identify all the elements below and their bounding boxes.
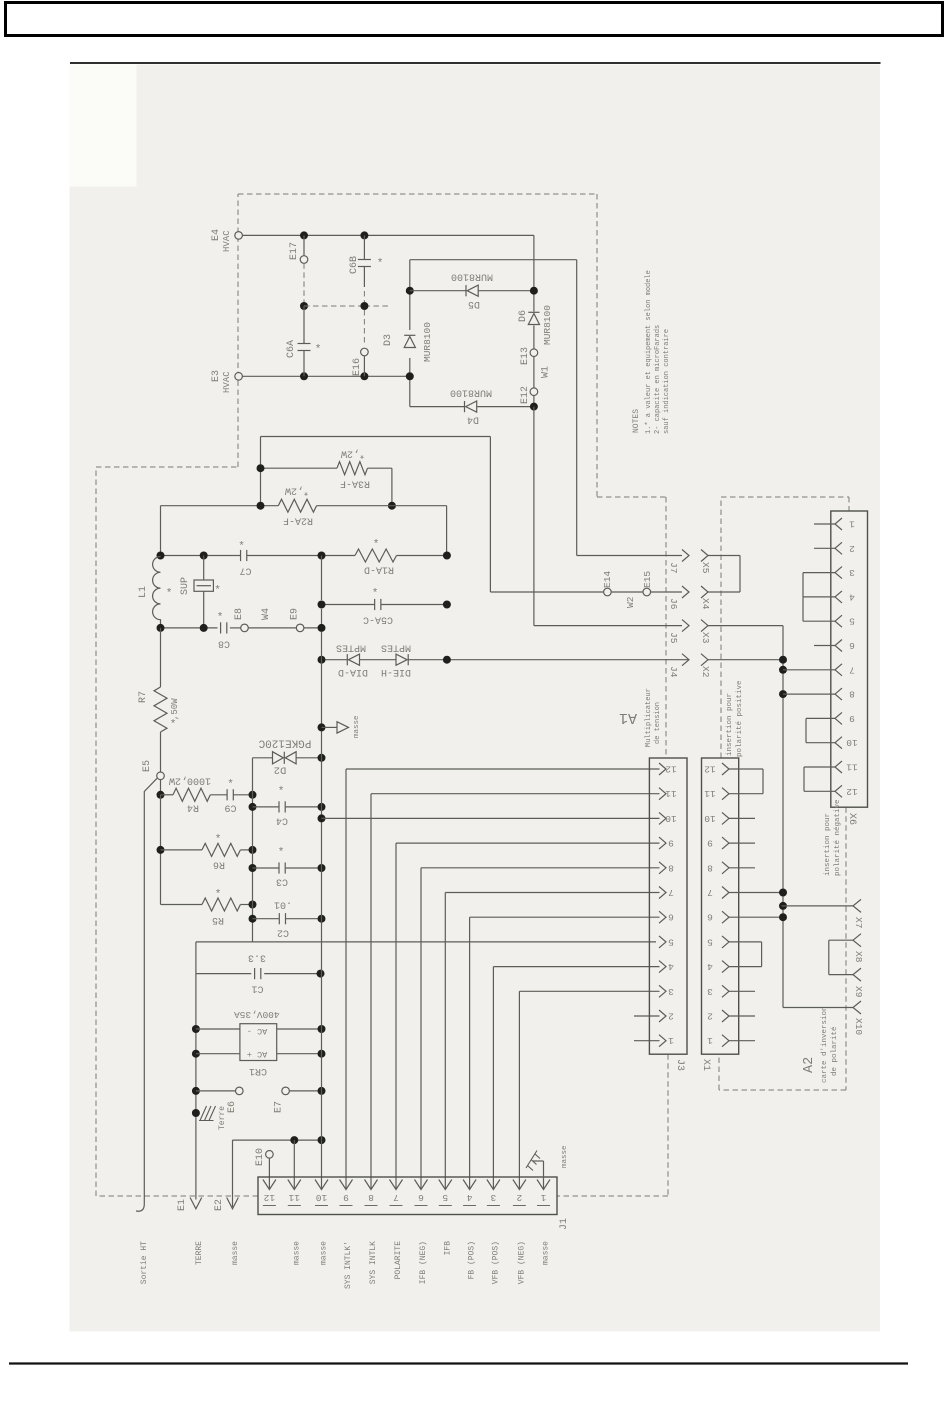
svg-text:3: 3 <box>668 986 674 997</box>
svg-text:masse: masse <box>293 1241 302 1265</box>
svg-text:de polarité: de polarité <box>831 1026 839 1076</box>
svg-text:X5: X5 <box>700 562 711 574</box>
svg-text:C2: C2 <box>277 926 289 937</box>
svg-text:C5A-C: C5A-C <box>363 613 393 624</box>
svg-text:5: 5 <box>668 936 674 947</box>
svg-text:2: 2 <box>849 543 855 554</box>
svg-text:2: 2 <box>668 1010 674 1021</box>
svg-text:POLARITE: POLARITE <box>394 1241 403 1280</box>
svg-text:HVAC: HVAC <box>222 371 232 393</box>
svg-text:R1A-D: R1A-D <box>364 563 394 574</box>
svg-text:X6: X6 <box>846 813 857 825</box>
svg-text:X10: X10 <box>853 1018 864 1035</box>
svg-text:R5: R5 <box>212 914 224 925</box>
svg-text:3: 3 <box>490 1192 496 1203</box>
svg-text:1: 1 <box>668 1035 674 1046</box>
svg-text:TERRE: TERRE <box>195 1241 204 1265</box>
svg-text:8: 8 <box>707 862 713 873</box>
svg-text:C6B: C6B <box>349 256 360 274</box>
svg-text:10: 10 <box>665 813 677 824</box>
svg-text:E14: E14 <box>602 571 613 588</box>
svg-text:E12: E12 <box>520 386 531 404</box>
svg-text:masse: masse <box>231 1241 240 1265</box>
svg-text:1: 1 <box>849 518 855 529</box>
svg-text:1.* a valeur et equipement sel: 1.* a valeur et equipement selon modele <box>645 270 653 434</box>
svg-text:X3: X3 <box>700 632 711 644</box>
svg-text:11: 11 <box>704 788 716 799</box>
svg-text:3: 3 <box>707 986 713 997</box>
svg-text:A1: A1 <box>619 709 637 726</box>
svg-text:11: 11 <box>665 788 677 799</box>
svg-text:E16: E16 <box>352 358 363 376</box>
svg-text:9: 9 <box>707 838 713 849</box>
svg-text:X1: X1 <box>700 1059 711 1071</box>
svg-text:HVAC: HVAC <box>222 230 232 252</box>
svg-text:D4: D4 <box>467 413 479 424</box>
svg-text:Multiplicateur: Multiplicateur <box>645 688 653 747</box>
svg-text:masse: masse <box>561 1145 569 1168</box>
svg-text:7: 7 <box>707 887 713 898</box>
svg-text:,50W: ,50W <box>170 698 180 720</box>
svg-text:VFB (POS): VFB (POS) <box>492 1241 501 1284</box>
svg-text:R6: R6 <box>213 858 225 869</box>
svg-text:IFB (NEG): IFB (NEG) <box>419 1241 428 1284</box>
svg-text:J7: J7 <box>668 562 679 573</box>
svg-text:C6A: C6A <box>286 340 297 358</box>
svg-text:MUR8100: MUR8100 <box>422 322 433 362</box>
svg-text:*: * <box>278 847 285 859</box>
svg-text:insertion pour: insertion pour <box>824 813 832 876</box>
svg-text:*: * <box>215 889 222 901</box>
svg-text:E5: E5 <box>142 760 153 772</box>
svg-text:12: 12 <box>263 1192 275 1203</box>
svg-text:FB (POS): FB (POS) <box>468 1241 477 1279</box>
svg-text:7: 7 <box>668 887 674 898</box>
svg-text:X2: X2 <box>700 666 711 678</box>
svg-text:L1: L1 <box>138 586 149 598</box>
svg-text:MPTES: MPTES <box>381 641 411 652</box>
svg-text:12: 12 <box>846 786 858 797</box>
svg-text:*: * <box>170 719 177 731</box>
svg-text:masse: masse <box>353 715 361 738</box>
svg-text:de tension: de tension <box>654 702 662 744</box>
svg-text:MUR8100: MUR8100 <box>542 305 553 345</box>
svg-text:DIA-D: DIA-D <box>338 666 368 677</box>
svg-text:*: * <box>372 588 379 600</box>
svg-text:D3: D3 <box>383 334 394 346</box>
svg-text:*: * <box>238 541 245 553</box>
svg-text:SUP: SUP <box>180 577 191 595</box>
svg-text:2: 2 <box>516 1192 522 1203</box>
svg-text:X4: X4 <box>700 598 711 610</box>
svg-text:4: 4 <box>849 591 855 602</box>
svg-text:NOTES: NOTES <box>632 409 641 433</box>
svg-text:MUR8100: MUR8100 <box>450 386 492 397</box>
svg-text:X7: X7 <box>853 917 864 928</box>
svg-text:E2: E2 <box>214 1199 225 1211</box>
svg-text:J4: J4 <box>668 666 679 678</box>
svg-text:*: * <box>215 834 222 846</box>
svg-text:R7: R7 <box>138 691 149 703</box>
svg-text:3.3: 3.3 <box>248 951 266 962</box>
svg-text:*: * <box>278 786 285 798</box>
svg-text:SYS INTLK: SYS INTLK <box>369 1241 378 1284</box>
svg-text:MPTES: MPTES <box>336 641 366 652</box>
svg-text:CR1: CR1 <box>249 1065 267 1076</box>
svg-text:4: 4 <box>668 961 674 972</box>
svg-text:8: 8 <box>849 689 855 700</box>
svg-text:E15: E15 <box>642 571 653 588</box>
svg-text:W1: W1 <box>541 366 552 378</box>
svg-text:*: * <box>166 588 173 600</box>
svg-text:7: 7 <box>849 664 855 675</box>
svg-text:E1: E1 <box>177 1199 188 1211</box>
svg-text:J3: J3 <box>674 1059 685 1071</box>
svg-text:R2A-F: R2A-F <box>283 514 313 525</box>
svg-text:SYS INTLK': SYS INTLK' <box>344 1241 353 1289</box>
svg-text:C4: C4 <box>276 814 288 825</box>
svg-text:A2: A2 <box>802 1057 817 1073</box>
svg-text:*,2W: *,2W <box>341 447 365 459</box>
svg-text:1: 1 <box>707 1035 713 1046</box>
svg-text:12: 12 <box>665 763 677 774</box>
svg-text:11: 11 <box>846 761 858 772</box>
svg-text:J6: J6 <box>668 598 679 610</box>
svg-text:D5: D5 <box>468 298 480 309</box>
svg-text:10: 10 <box>316 1192 328 1203</box>
svg-text:polarité positive: polarité positive <box>736 680 744 757</box>
svg-text:6: 6 <box>668 912 674 923</box>
svg-text:AC -: AC - <box>247 1026 267 1036</box>
svg-text:J1: J1 <box>559 1218 570 1230</box>
svg-text:Sortie HT: Sortie HT <box>140 1241 149 1284</box>
svg-text:sauf indication contraire: sauf indication contraire <box>663 329 671 434</box>
svg-text:C9: C9 <box>224 801 236 812</box>
svg-text:E13: E13 <box>520 347 531 365</box>
svg-text:masse: masse <box>542 1241 551 1265</box>
svg-text:DIE-H: DIE-H <box>381 666 411 677</box>
svg-text:*: * <box>373 539 380 551</box>
svg-text:5: 5 <box>442 1192 448 1203</box>
svg-text:E7: E7 <box>274 1101 285 1113</box>
svg-text:X8: X8 <box>853 951 864 963</box>
svg-text:*: * <box>315 344 322 356</box>
svg-text:5: 5 <box>707 936 713 947</box>
svg-text:polarité négative: polarité négative <box>834 799 842 876</box>
svg-text:*: * <box>377 258 384 270</box>
svg-text:E9: E9 <box>290 608 301 620</box>
svg-text:C8: C8 <box>218 637 230 648</box>
svg-text:2- capacite en microFarads: 2- capacite en microFarads <box>654 325 662 434</box>
svg-text:IFB: IFB <box>444 1241 453 1256</box>
svg-text:4: 4 <box>466 1192 472 1203</box>
svg-text:2: 2 <box>707 1010 713 1021</box>
svg-text:6: 6 <box>849 640 855 651</box>
svg-text:C3: C3 <box>276 875 288 886</box>
svg-text:400V,35A: 400V,35A <box>234 1009 280 1020</box>
svg-text:.01: .01 <box>274 898 292 909</box>
svg-text:9: 9 <box>849 713 855 724</box>
svg-text:E8: E8 <box>234 608 245 620</box>
svg-text:VFB (NEG): VFB (NEG) <box>518 1241 527 1284</box>
svg-text:E4: E4 <box>211 229 222 241</box>
svg-text:W4: W4 <box>261 608 272 620</box>
svg-text:AC +: AC + <box>247 1049 267 1059</box>
svg-text:3: 3 <box>849 567 855 578</box>
svg-text:E17: E17 <box>289 242 300 260</box>
svg-text:J5: J5 <box>668 632 679 644</box>
svg-text:masse: masse <box>320 1241 329 1265</box>
svg-text:8: 8 <box>368 1192 374 1203</box>
svg-text:*: * <box>217 612 224 624</box>
svg-text:PGKE120C: PGKE120C <box>258 737 311 749</box>
svg-text:8: 8 <box>668 862 674 873</box>
svg-text:10: 10 <box>704 813 716 824</box>
svg-text:7: 7 <box>393 1192 399 1203</box>
svg-text:X9: X9 <box>853 986 864 998</box>
svg-text:W2: W2 <box>625 596 636 608</box>
svg-text:E10: E10 <box>255 1148 266 1166</box>
svg-text:11: 11 <box>288 1192 300 1203</box>
svg-text:6: 6 <box>418 1192 424 1203</box>
svg-text:1: 1 <box>540 1192 546 1203</box>
svg-text:1000,2W: 1000,2W <box>169 774 211 785</box>
svg-text:insertion pour: insertion pour <box>726 693 734 756</box>
svg-text:C7: C7 <box>239 564 251 575</box>
svg-text:*,2W: *,2W <box>285 484 309 496</box>
svg-text:*: * <box>214 585 221 597</box>
svg-text:9: 9 <box>668 838 674 849</box>
svg-text:6: 6 <box>707 912 713 923</box>
svg-text:D6: D6 <box>518 310 529 322</box>
svg-text:5: 5 <box>849 616 855 627</box>
svg-text:4: 4 <box>707 961 713 972</box>
svg-text:R4: R4 <box>187 801 199 812</box>
svg-text:carte d'inversion: carte d'inversion <box>821 1006 829 1083</box>
svg-text:C1: C1 <box>251 982 263 993</box>
svg-text:E3: E3 <box>211 370 222 382</box>
svg-text:D2: D2 <box>274 764 287 776</box>
svg-text:E6: E6 <box>227 1101 238 1113</box>
svg-text:Terre: Terre <box>218 1106 227 1130</box>
svg-text:MUR8100: MUR8100 <box>451 270 493 281</box>
svg-text:R3A-F: R3A-F <box>340 477 370 488</box>
svg-text:*: * <box>227 779 234 791</box>
svg-text:9: 9 <box>343 1192 349 1203</box>
svg-text:12: 12 <box>704 763 716 774</box>
svg-text:10: 10 <box>846 737 858 748</box>
